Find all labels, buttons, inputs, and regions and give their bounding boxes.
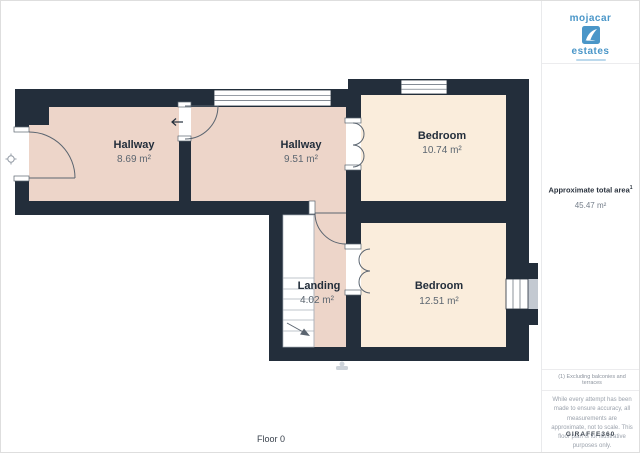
- entrance-marker-icon: [6, 154, 17, 165]
- giraffe360-brand: GIRAFFE360: [542, 431, 639, 438]
- total-area-block: Approximate total area1 45.47 m²: [542, 185, 639, 210]
- floor-plan: Hallway 8.69 m² Hallway 9.51 m² Bedroom …: [1, 1, 541, 454]
- window-top-bedroom: [401, 80, 447, 94]
- room-name-landing: Landing: [298, 280, 341, 292]
- sidebar: mojacar estates Approximate total area1 …: [541, 1, 639, 452]
- room-hallway-2-floor: [191, 105, 346, 347]
- agency-logo-name-bottom: estates: [542, 46, 639, 57]
- sidebar-divider: [542, 390, 639, 391]
- agency-logo-tagline: [576, 59, 606, 61]
- agency-logo-name-top: mojacar: [542, 13, 639, 24]
- page-frame: Hallway 8.69 m² Hallway 9.51 m² Bedroom …: [0, 0, 640, 453]
- disclaimer-text: While every attempt has been made to ens…: [550, 396, 634, 452]
- window-right-bedroom: [506, 279, 538, 309]
- room-area-bedroom-2: 12.51 m²: [419, 296, 459, 307]
- room-area-landing: 4.02 m²: [300, 295, 335, 306]
- room-area-hallway-1: 8.69 m²: [117, 154, 152, 165]
- total-area-footnote-ref: 1: [630, 185, 633, 191]
- sidebar-divider: [542, 369, 639, 370]
- agency-logo-icon: [582, 26, 600, 44]
- agency-logo: mojacar estates: [542, 13, 639, 61]
- room-name-bedroom-2: Bedroom: [415, 280, 464, 292]
- room-area-hallway-2: 9.51 m²: [284, 154, 319, 165]
- floor-label: Floor 0: [1, 434, 541, 444]
- area-footnote: (1) Excluding balconies and terraces: [548, 374, 636, 386]
- room-area-bedroom-1: 10.74 m²: [422, 145, 462, 156]
- sidebar-divider: [542, 63, 639, 64]
- room-name-hallway-1: Hallway: [114, 139, 156, 151]
- total-area-value: 45.47 m²: [542, 201, 639, 210]
- floor-plan-area: Hallway 8.69 m² Hallway 9.51 m² Bedroom …: [1, 1, 541, 452]
- room-hallway-1-floor: [29, 107, 179, 201]
- total-area-label: Approximate total area1: [542, 185, 639, 195]
- window-top-hallway: [214, 90, 331, 106]
- camera-position-icon: [336, 362, 348, 371]
- room-name-hallway-2: Hallway: [281, 139, 323, 151]
- room-name-bedroom-1: Bedroom: [418, 130, 467, 142]
